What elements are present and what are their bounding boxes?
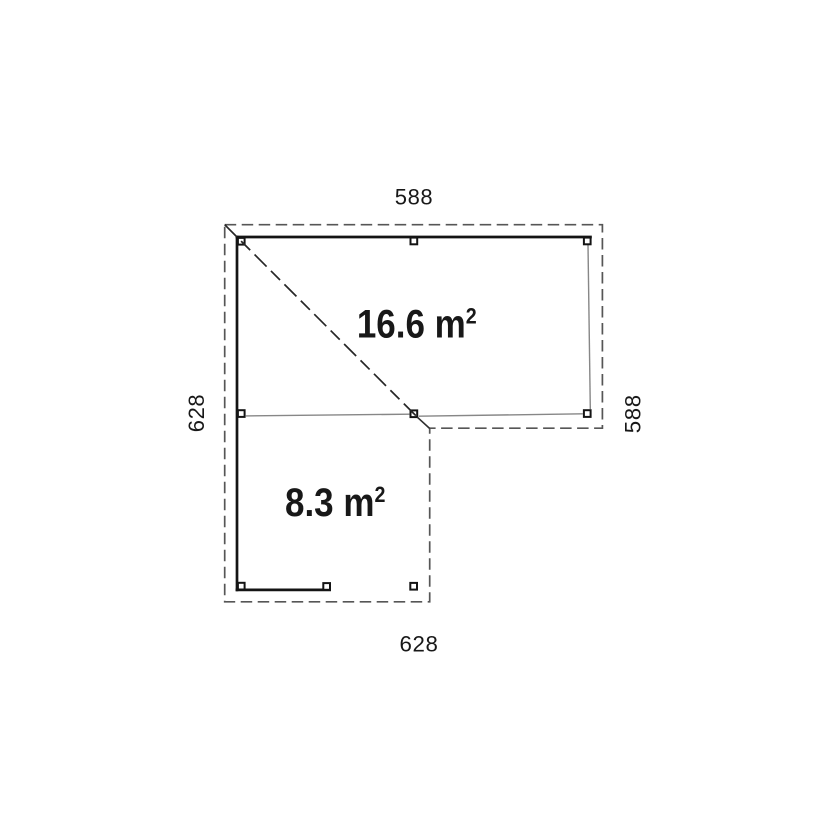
svg-text:16.6 m2: 16.6 m2 (357, 301, 477, 346)
svg-text:628: 628 (399, 632, 438, 657)
svg-text:8.3 m2: 8.3 m2 (285, 480, 385, 525)
svg-text:588: 588 (621, 394, 646, 433)
svg-text:588: 588 (395, 185, 434, 210)
svg-text:628: 628 (184, 394, 209, 433)
